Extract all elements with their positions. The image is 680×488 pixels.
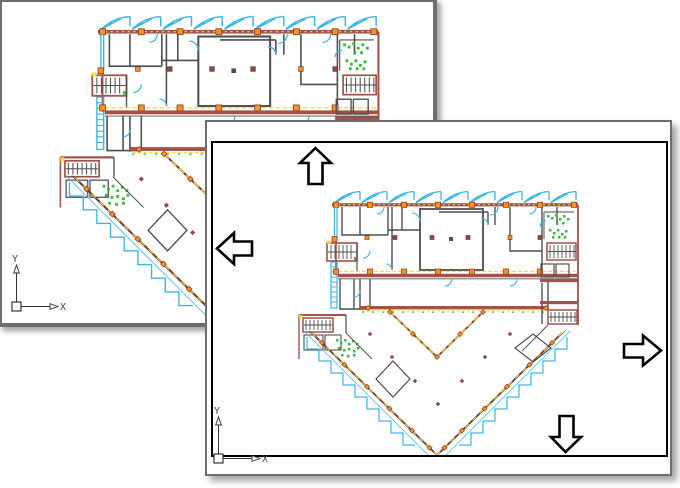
x-axis-arrowhead xyxy=(252,456,260,462)
y-axis-arrowhead xyxy=(14,265,20,273)
axis-label-y: Y xyxy=(214,406,220,417)
axis-label-x: X xyxy=(60,302,66,313)
pan-arrows-overlay xyxy=(207,122,670,474)
pan-right-arrow[interactable] xyxy=(624,336,661,366)
page: Y X Y X xyxy=(0,0,680,488)
ucs-origin-box xyxy=(214,454,223,463)
ucs-origin-box xyxy=(12,302,21,311)
pan-left-arrow[interactable] xyxy=(217,233,252,264)
axis-label-x: X xyxy=(262,454,268,465)
ucs-axis-icon: Y X xyxy=(212,404,272,468)
x-axis-arrowhead xyxy=(50,304,58,310)
y-axis-arrowhead xyxy=(216,417,222,425)
ucs-axis-icon: Y X xyxy=(10,252,70,316)
axis-label-y: Y xyxy=(12,254,18,265)
pan-up-arrow[interactable] xyxy=(300,148,331,184)
foreground-viewport-window[interactable]: Y X xyxy=(205,120,672,476)
pan-down-arrow[interactable] xyxy=(551,416,581,452)
